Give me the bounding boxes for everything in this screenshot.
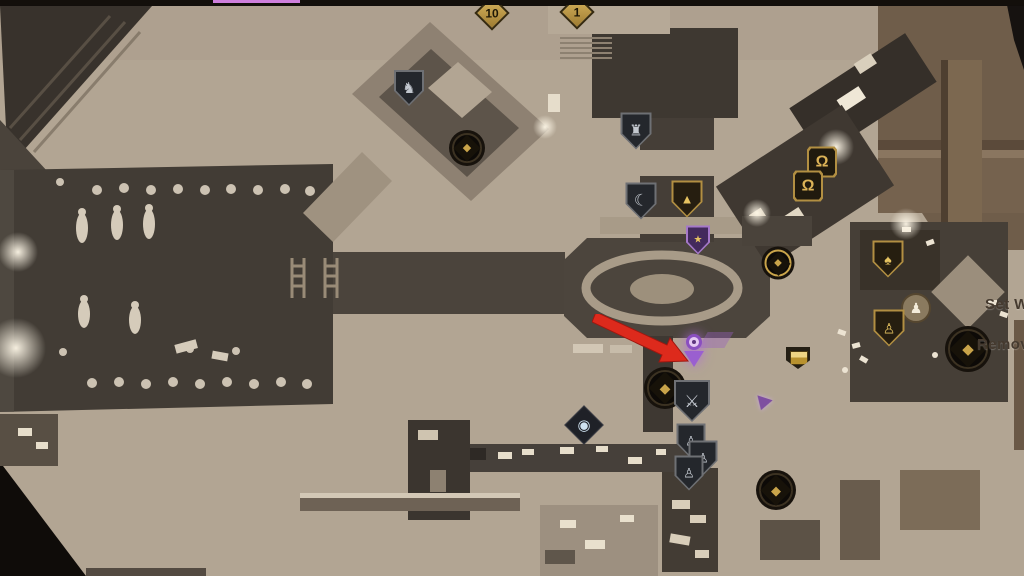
bell-collectible-lower[interactable]: Ω	[793, 171, 823, 202]
gate-landmark-marker[interactable]: ◆	[452, 133, 482, 163]
context-menu-set-waypoint[interactable]: Set W	[985, 296, 1024, 313]
landmark-icon: ◆	[463, 143, 471, 154]
chest-icon	[790, 351, 808, 365]
bell-icon: Ω	[802, 178, 815, 194]
floo-flame-tip	[684, 351, 704, 367]
bell-icon: Ω	[816, 154, 829, 170]
landmark-icon: ◆	[660, 381, 671, 395]
landmark-ne-marker[interactable]: ◆	[765, 250, 792, 277]
armor-icon: ♙	[883, 321, 896, 335]
context-menu-remove[interactable]: Remov	[977, 336, 1024, 353]
floo-flame-marker[interactable]	[681, 330, 707, 370]
landmark-icon: ◆	[771, 484, 781, 497]
landmark-icon: ◆	[774, 258, 782, 268]
moon-icon: ☾	[634, 193, 648, 209]
map-canvas[interactable]	[0, 0, 1024, 576]
video-progress-bar	[213, 0, 300, 3]
castle-icon: ♜	[629, 124, 642, 139]
triangle-icon: ▲	[681, 193, 694, 206]
crossed-swords-icon: ⚔	[684, 393, 699, 410]
crest-icon: ♞	[402, 81, 415, 96]
game-map-screen: 10 1 ♞ ◆ ♜ ☾ ▲ ★ ◆ Ω Ω ♠ ♟ ♙ ◆ ◆ ◆	[0, 0, 1024, 576]
star-icon: ★	[694, 235, 703, 245]
eye-icon: ◉	[571, 412, 597, 438]
trophy-icon: ♙	[683, 467, 695, 480]
figure-icon: ♟	[910, 301, 923, 315]
floo-flame-icon	[686, 334, 702, 350]
leaf-icon: ♠	[884, 252, 891, 266]
floor-badge-10-label: 10	[482, 3, 503, 24]
chest-landmark-marker[interactable]: ◆	[759, 473, 793, 507]
statue-figure-marker[interactable]: ♟	[901, 293, 931, 323]
letterbox-top-bar	[0, 0, 1024, 5]
landmark-icon: ◆	[962, 342, 974, 357]
